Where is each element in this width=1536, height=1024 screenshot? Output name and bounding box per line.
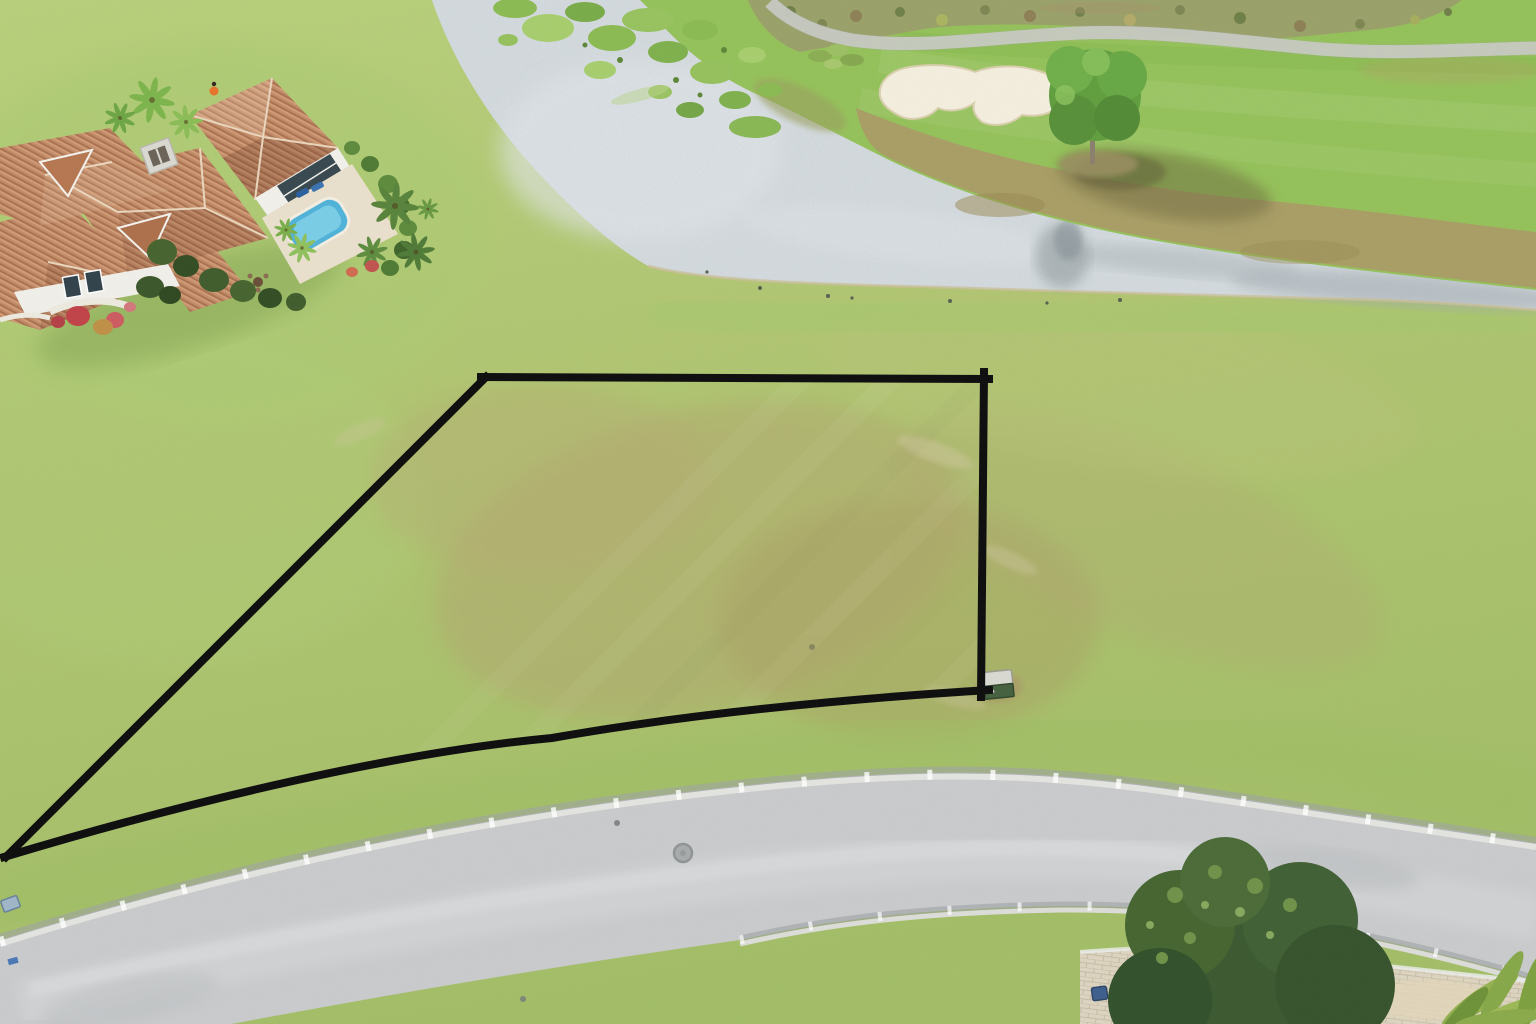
photo-grain-overlay [0, 0, 1536, 1024]
scene-canvas [0, 0, 1536, 1024]
aerial-photo-lot-for-sale [0, 0, 1536, 1024]
